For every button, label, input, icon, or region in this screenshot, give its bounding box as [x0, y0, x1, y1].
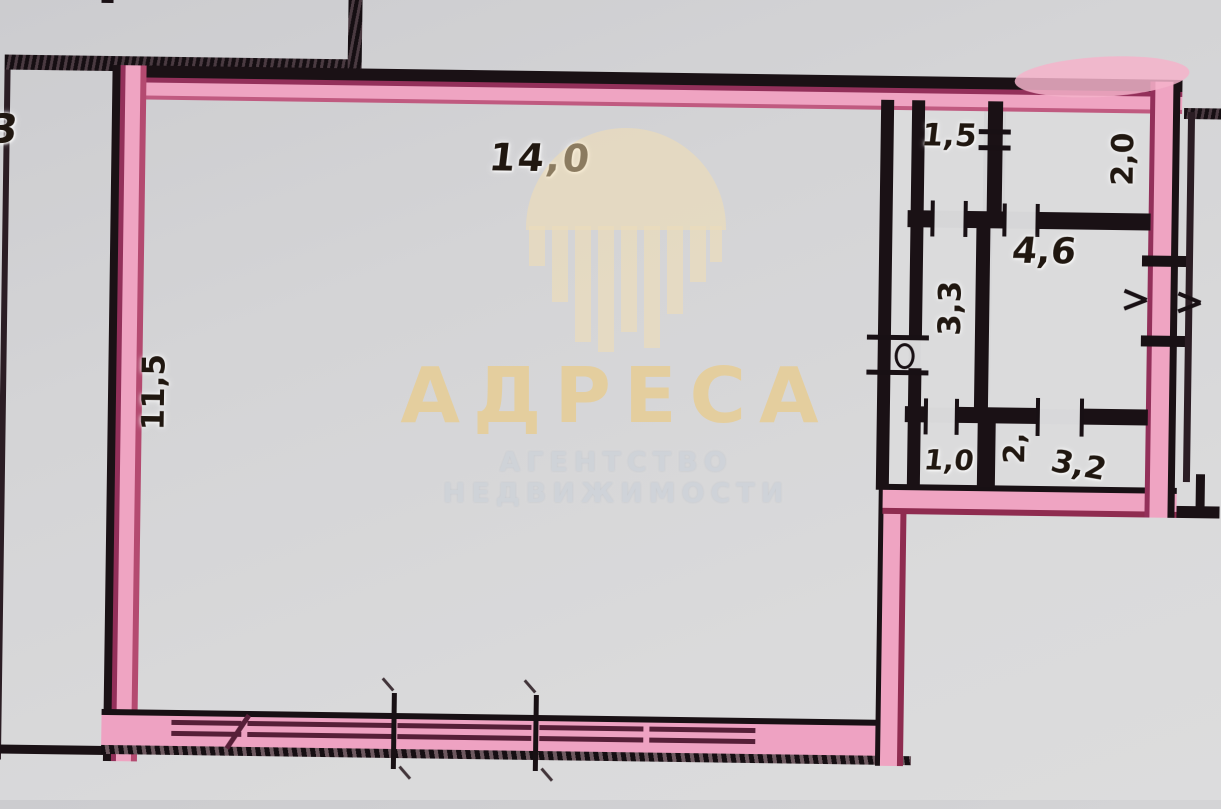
area-label-1-5: 1,5: [920, 120, 979, 152]
door-jamb: [1036, 398, 1041, 436]
area-label-3-2: 3,2: [1048, 446, 1110, 486]
door-jamb: [1080, 399, 1085, 437]
adjacent-wall-bottom-left: [0, 744, 103, 755]
door-jamb: [955, 399, 960, 435]
unit-wall-annex-right: [1144, 82, 1180, 518]
door-jamb: [867, 335, 929, 341]
unit-wall-right-lower: [875, 484, 907, 766]
adjacent-wall-left-edge: [0, 70, 11, 760]
door-jamb: [866, 370, 928, 376]
unit-wall-annex-bottom: [882, 484, 1176, 518]
wall-bottomrow-top: [958, 407, 1038, 424]
door-jamb: [930, 200, 935, 236]
area-label-2-0: 2,0: [1109, 132, 1140, 186]
adjacent-wall-bottom-right: [1174, 506, 1219, 519]
door-hinge-mark: [894, 343, 914, 369]
adjacent-wall-top-vertical: [348, 0, 363, 68]
vent-tick: [979, 145, 1011, 150]
area-label-4-6: 4,6: [1010, 234, 1078, 271]
dim-label-2: 2,: [1000, 432, 1029, 464]
wall-corridor-left-lower: [907, 368, 922, 490]
vent-tick: [979, 129, 1011, 134]
area-label-1-0: 1,0: [923, 446, 976, 475]
survey-hatch-mark: [398, 766, 411, 780]
door-jamb: [1002, 203, 1006, 236]
survey-hatch-mark: [524, 679, 537, 693]
scanned-floor-plan-photo: { "watermark": { "brand": "АДРЕСА", "tag…: [0, 0, 1221, 800]
dim-label-main-14-0: 14,0: [487, 138, 593, 177]
survey-hatch-mark: [382, 677, 395, 691]
door-jamb: [1141, 335, 1185, 347]
wall-corridor-right: [974, 223, 991, 411]
door-jamb: [963, 201, 968, 237]
dim-label-main-11-5: 11,5: [138, 354, 170, 431]
door-jamb: [1142, 255, 1186, 267]
door-jamb: [924, 398, 929, 434]
floor-plan-drawing: 14,0 11,5 1,5 2,0 4,6 3,3 1,0 2, 3,2 3: [0, 0, 1221, 808]
wall-bottomrow-divider: [977, 419, 996, 487]
window-line: [171, 720, 241, 726]
wall-toprow-bottom: [1038, 212, 1150, 231]
wall-toprow-divider: [987, 101, 1004, 213]
area-label-3-3: 3,3: [935, 281, 967, 336]
window-divider-tick: [391, 693, 397, 769]
survey-hatch-mark: [540, 768, 553, 782]
partial-edge-label: 3: [0, 109, 20, 149]
window-divider-tick: [533, 695, 539, 771]
wall-bottomrow-top: [1082, 409, 1148, 426]
adjacent-wall-top-stub: [101, 0, 113, 3]
